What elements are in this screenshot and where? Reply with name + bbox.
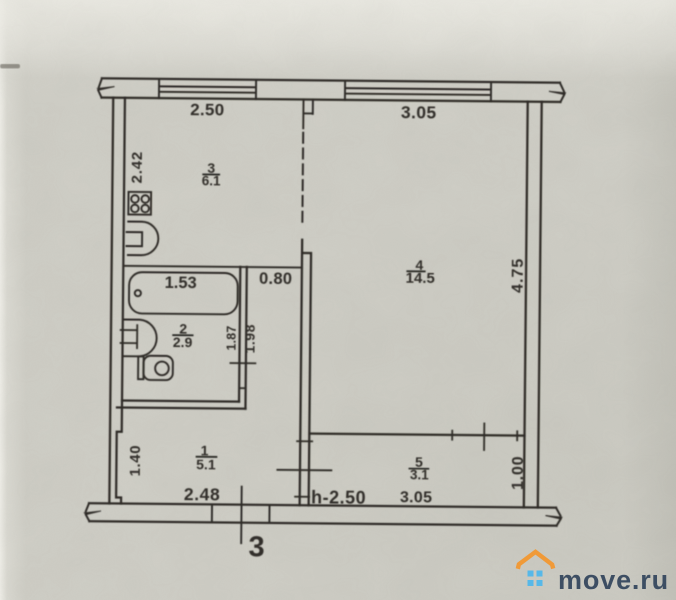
svg-text:h-2.50: h-2.50 bbox=[311, 487, 366, 508]
svg-text:2.50: 2.50 bbox=[190, 100, 224, 119]
svg-text:3: 3 bbox=[248, 531, 264, 563]
svg-text:4.75: 4.75 bbox=[510, 258, 527, 293]
svg-text:2.9: 2.9 bbox=[173, 334, 193, 350]
svg-text:1.40: 1.40 bbox=[127, 445, 144, 477]
svg-text:3.05: 3.05 bbox=[400, 489, 433, 506]
svg-text:1.87: 1.87 bbox=[225, 325, 239, 350]
svg-text:6.1: 6.1 bbox=[202, 173, 221, 188]
svg-text:0.80: 0.80 bbox=[259, 270, 292, 288]
svg-text:move.ru: move.ru bbox=[558, 565, 669, 595]
svg-text:5.1: 5.1 bbox=[196, 456, 216, 472]
svg-text:1.98: 1.98 bbox=[241, 324, 257, 353]
svg-text:1.00: 1.00 bbox=[510, 456, 527, 491]
svg-text:1.53: 1.53 bbox=[165, 274, 197, 292]
svg-text:3.1: 3.1 bbox=[410, 467, 429, 482]
svg-text:3.05: 3.05 bbox=[401, 102, 437, 122]
svg-text:14.5: 14.5 bbox=[406, 270, 435, 287]
svg-text:2.42: 2.42 bbox=[129, 151, 146, 184]
svg-text:2.48: 2.48 bbox=[184, 484, 221, 504]
